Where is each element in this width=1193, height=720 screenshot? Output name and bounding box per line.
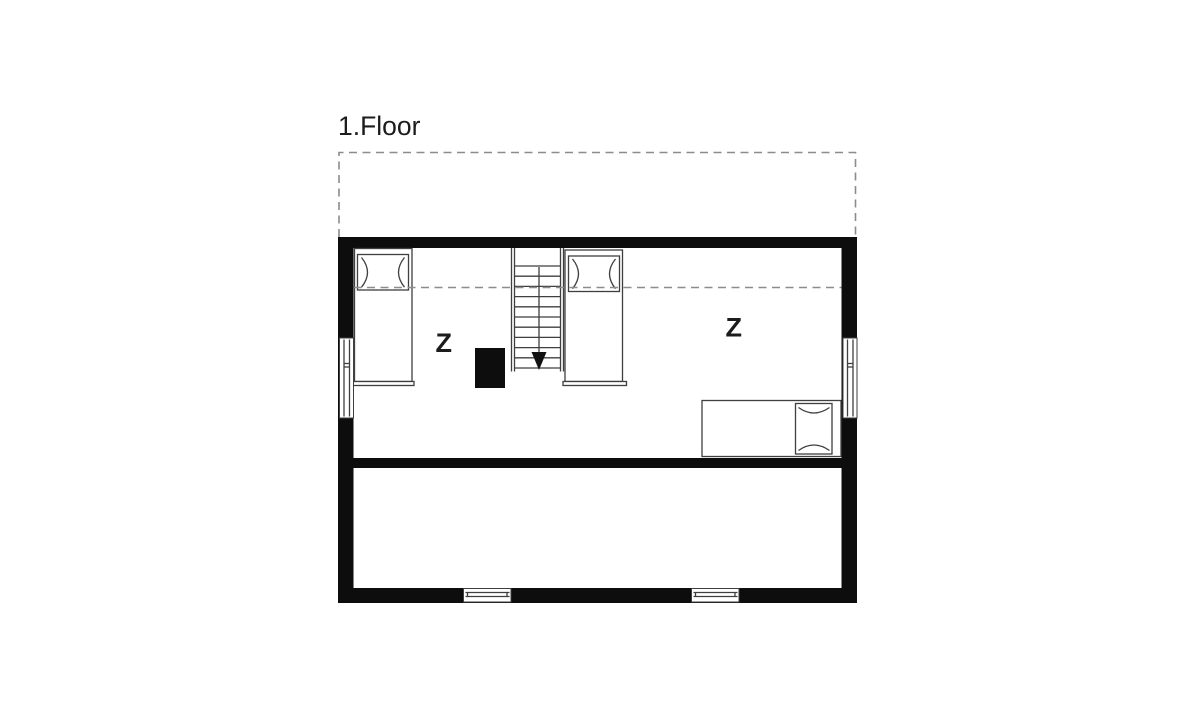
- wall-bottom: [338, 588, 857, 603]
- floor-plan-drawing: 1.Floor: [0, 0, 1193, 720]
- wall-right: [842, 237, 858, 603]
- bed-footboard: [563, 382, 627, 386]
- floor-title: 1.Floor: [338, 111, 421, 141]
- wall-interior: [338, 458, 857, 468]
- floor-plan-page: 1.Floor: [0, 0, 1193, 720]
- window-bottom-wall-right: [692, 589, 740, 603]
- pillow: [358, 255, 409, 291]
- wall-left: [338, 237, 354, 603]
- window-right-wall: [843, 338, 857, 418]
- window-bottom-wall-left: [464, 589, 512, 603]
- chimney-block: [475, 348, 505, 388]
- room-label-right: Z: [726, 313, 743, 343]
- room-label-left: Z: [436, 328, 453, 358]
- bed-footboard: [353, 382, 415, 386]
- bed-single-top-left: [353, 249, 415, 386]
- staircase-down: [512, 248, 564, 372]
- window-left-wall: [340, 338, 354, 418]
- wall-top: [338, 237, 857, 248]
- pillow: [796, 404, 833, 455]
- pillow: [569, 256, 620, 292]
- bed-single-center: [563, 250, 627, 386]
- bed-single-bottom-right: [702, 401, 841, 457]
- stairs-down-arrow-icon: [532, 352, 547, 370]
- roof-outline-dashed: [339, 153, 856, 238]
